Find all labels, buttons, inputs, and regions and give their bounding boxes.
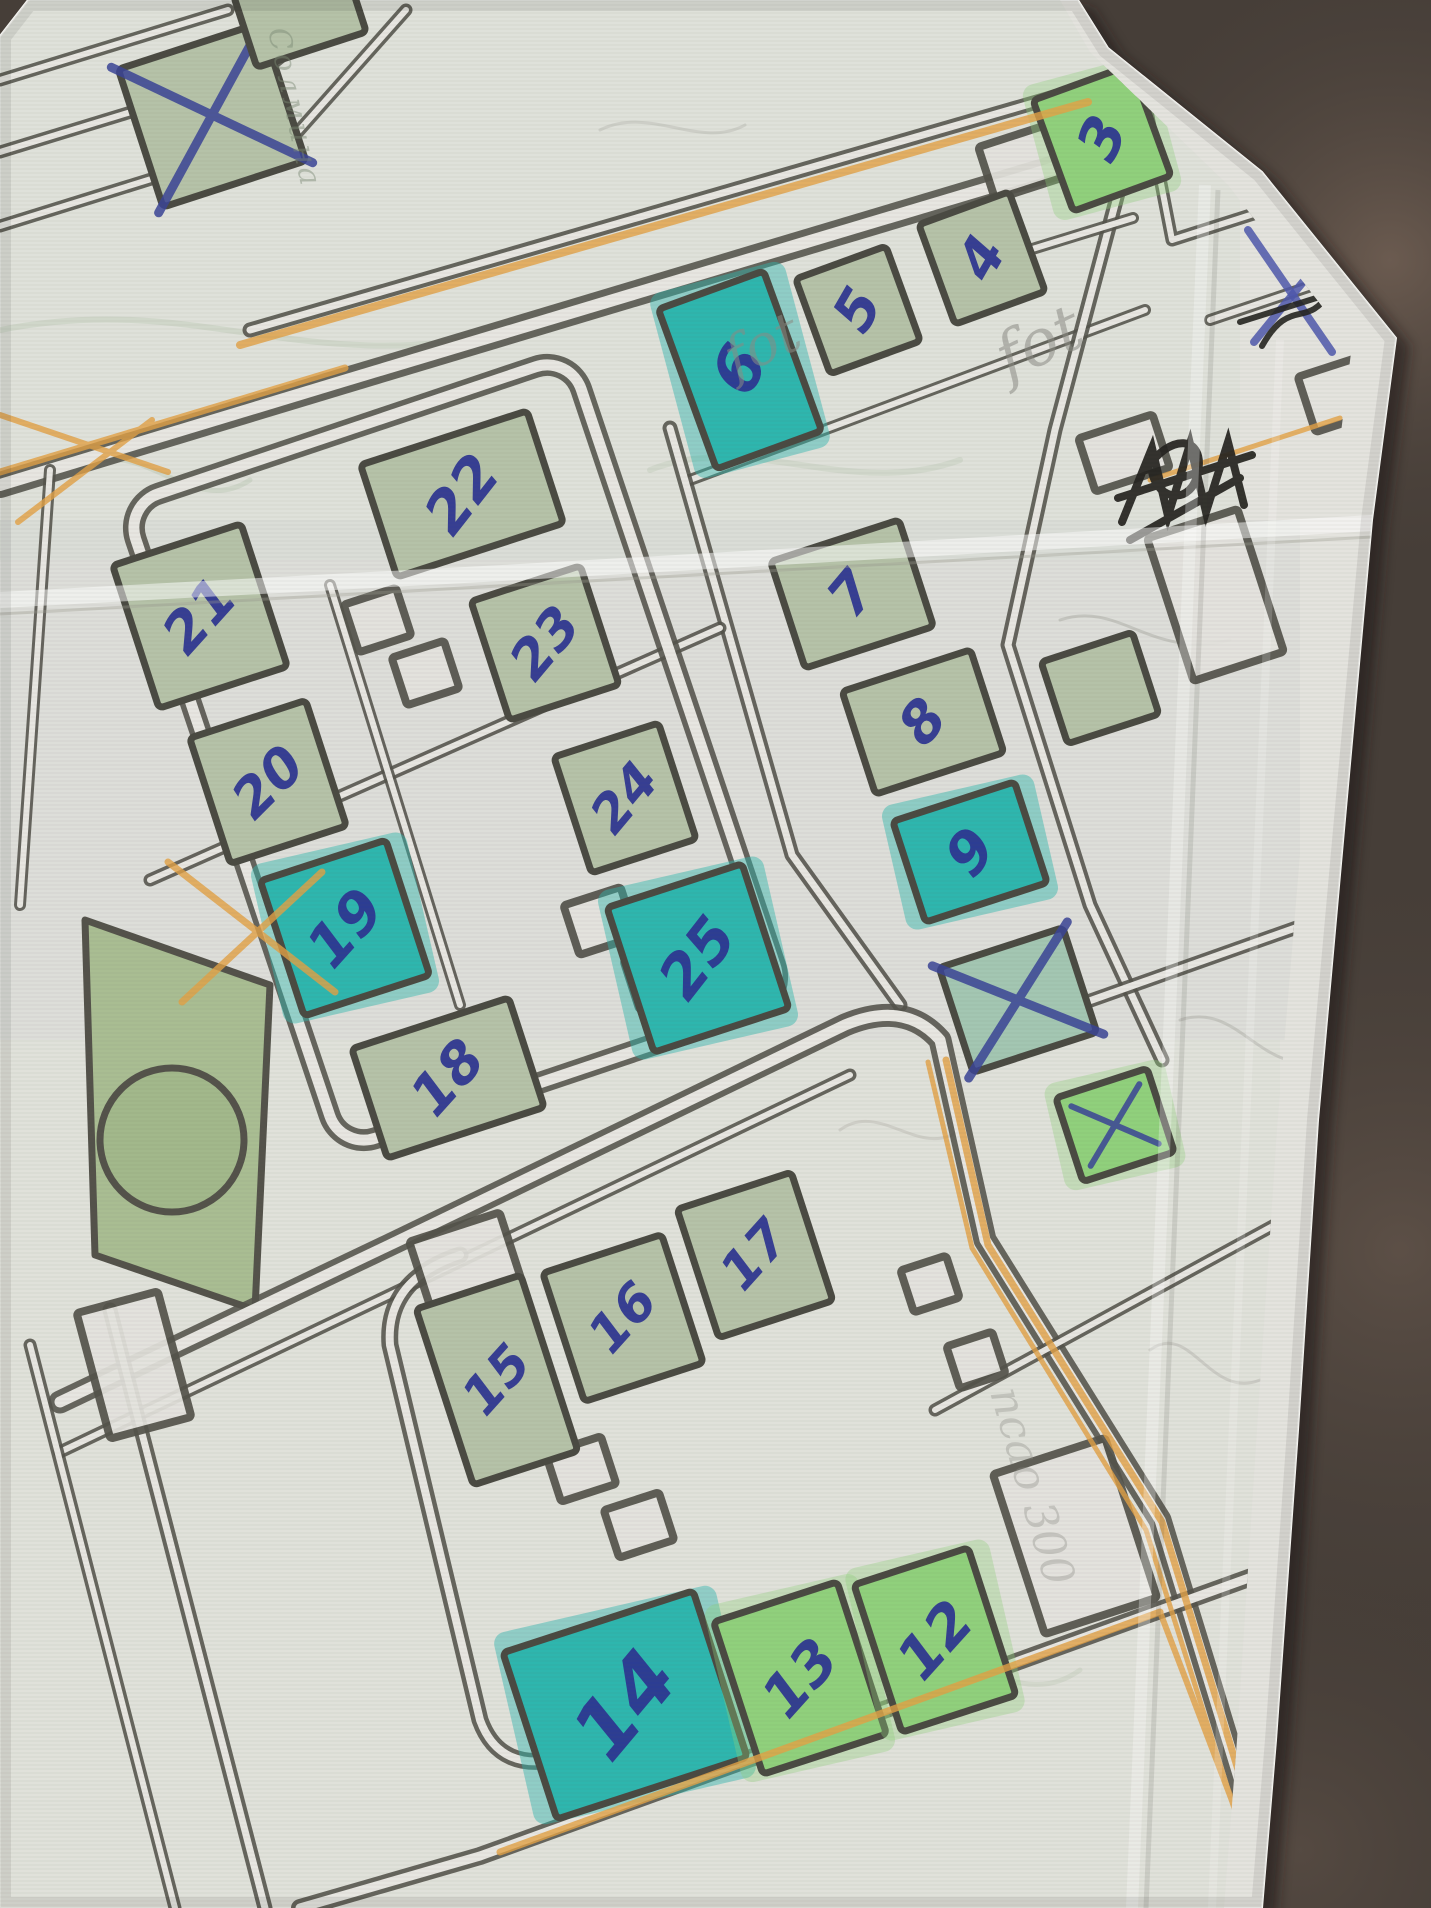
map-photo: 34567892122232024192518171615141312Солми…: [0, 0, 1431, 1908]
annotated-street-map: 34567892122232024192518171615141312Солми…: [0, 0, 1431, 1908]
paper-texture: [0, 0, 1396, 1908]
